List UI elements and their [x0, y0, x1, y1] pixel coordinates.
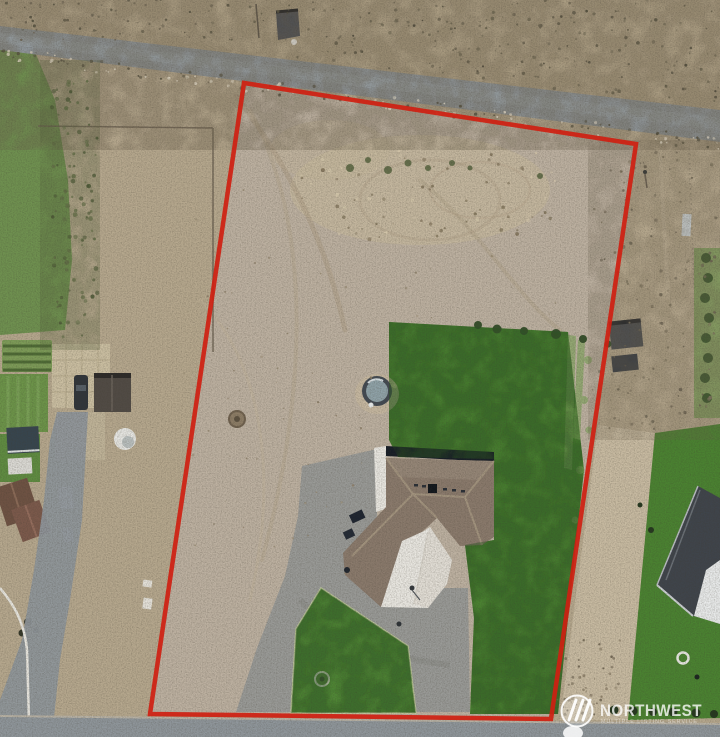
watermark-tagline-text: MULTIPLE LISTING SERVICE — [601, 719, 698, 725]
aerial-photo: NORTHWEST MULTIPLE LISTING SERVICE — [0, 0, 720, 737]
watermark-brand-text: NORTHWEST — [600, 701, 702, 720]
watermark-logo-icon — [562, 696, 593, 727]
listing-photo-frame: NORTHWEST MULTIPLE LISTING SERVICE — [0, 0, 720, 737]
photo-grain — [0, 0, 720, 737]
